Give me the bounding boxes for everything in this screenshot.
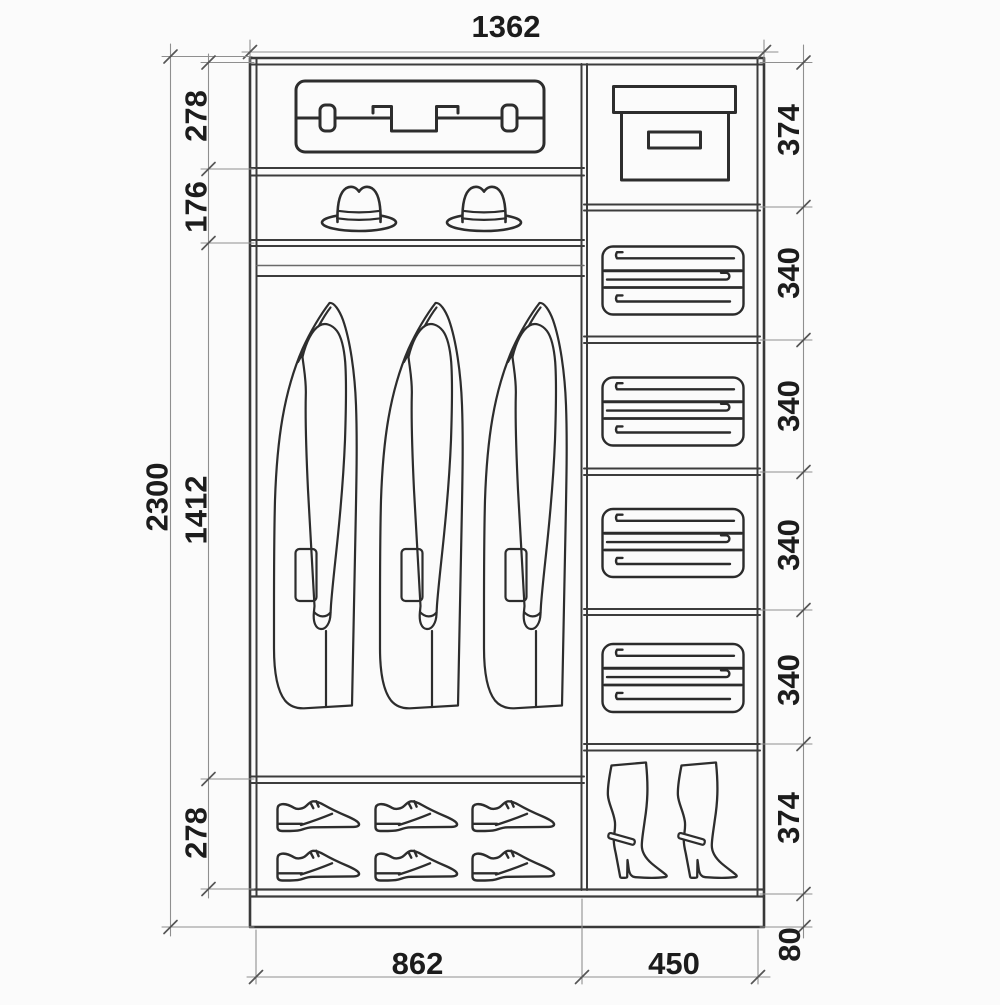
svg-text:374: 374 xyxy=(771,791,806,843)
svg-text:278: 278 xyxy=(179,90,214,142)
svg-text:340: 340 xyxy=(771,247,806,299)
svg-text:340: 340 xyxy=(771,519,806,571)
svg-text:2300: 2300 xyxy=(140,463,175,532)
svg-text:340: 340 xyxy=(771,380,806,432)
svg-text:278: 278 xyxy=(179,807,214,859)
svg-text:374: 374 xyxy=(771,103,806,155)
svg-text:862: 862 xyxy=(392,946,444,981)
svg-text:176: 176 xyxy=(179,181,214,233)
svg-text:1412: 1412 xyxy=(179,476,214,545)
svg-text:340: 340 xyxy=(771,654,806,706)
svg-text:1362: 1362 xyxy=(472,9,541,44)
svg-text:80: 80 xyxy=(772,927,807,961)
svg-text:450: 450 xyxy=(648,946,700,981)
